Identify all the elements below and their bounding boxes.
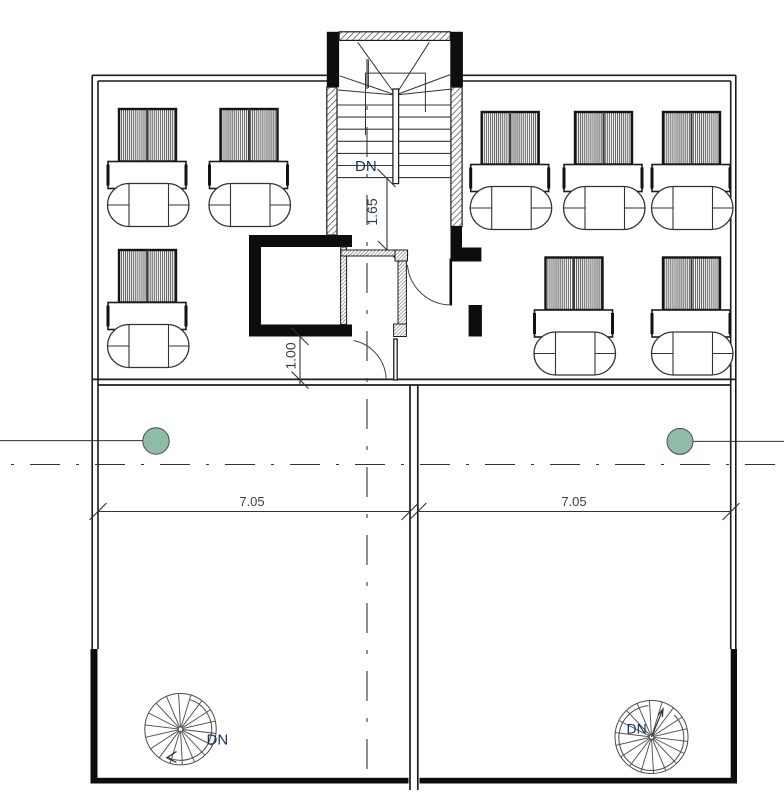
svg-text:DN: DN xyxy=(355,158,377,175)
svg-text:7.05: 7.05 xyxy=(239,494,264,509)
svg-text:7.05: 7.05 xyxy=(561,494,586,509)
svg-text:DN: DN xyxy=(627,721,647,737)
svg-text:DN: DN xyxy=(207,732,229,749)
svg-text:1.00: 1.00 xyxy=(283,342,299,369)
svg-text:1.65: 1.65 xyxy=(364,198,380,225)
